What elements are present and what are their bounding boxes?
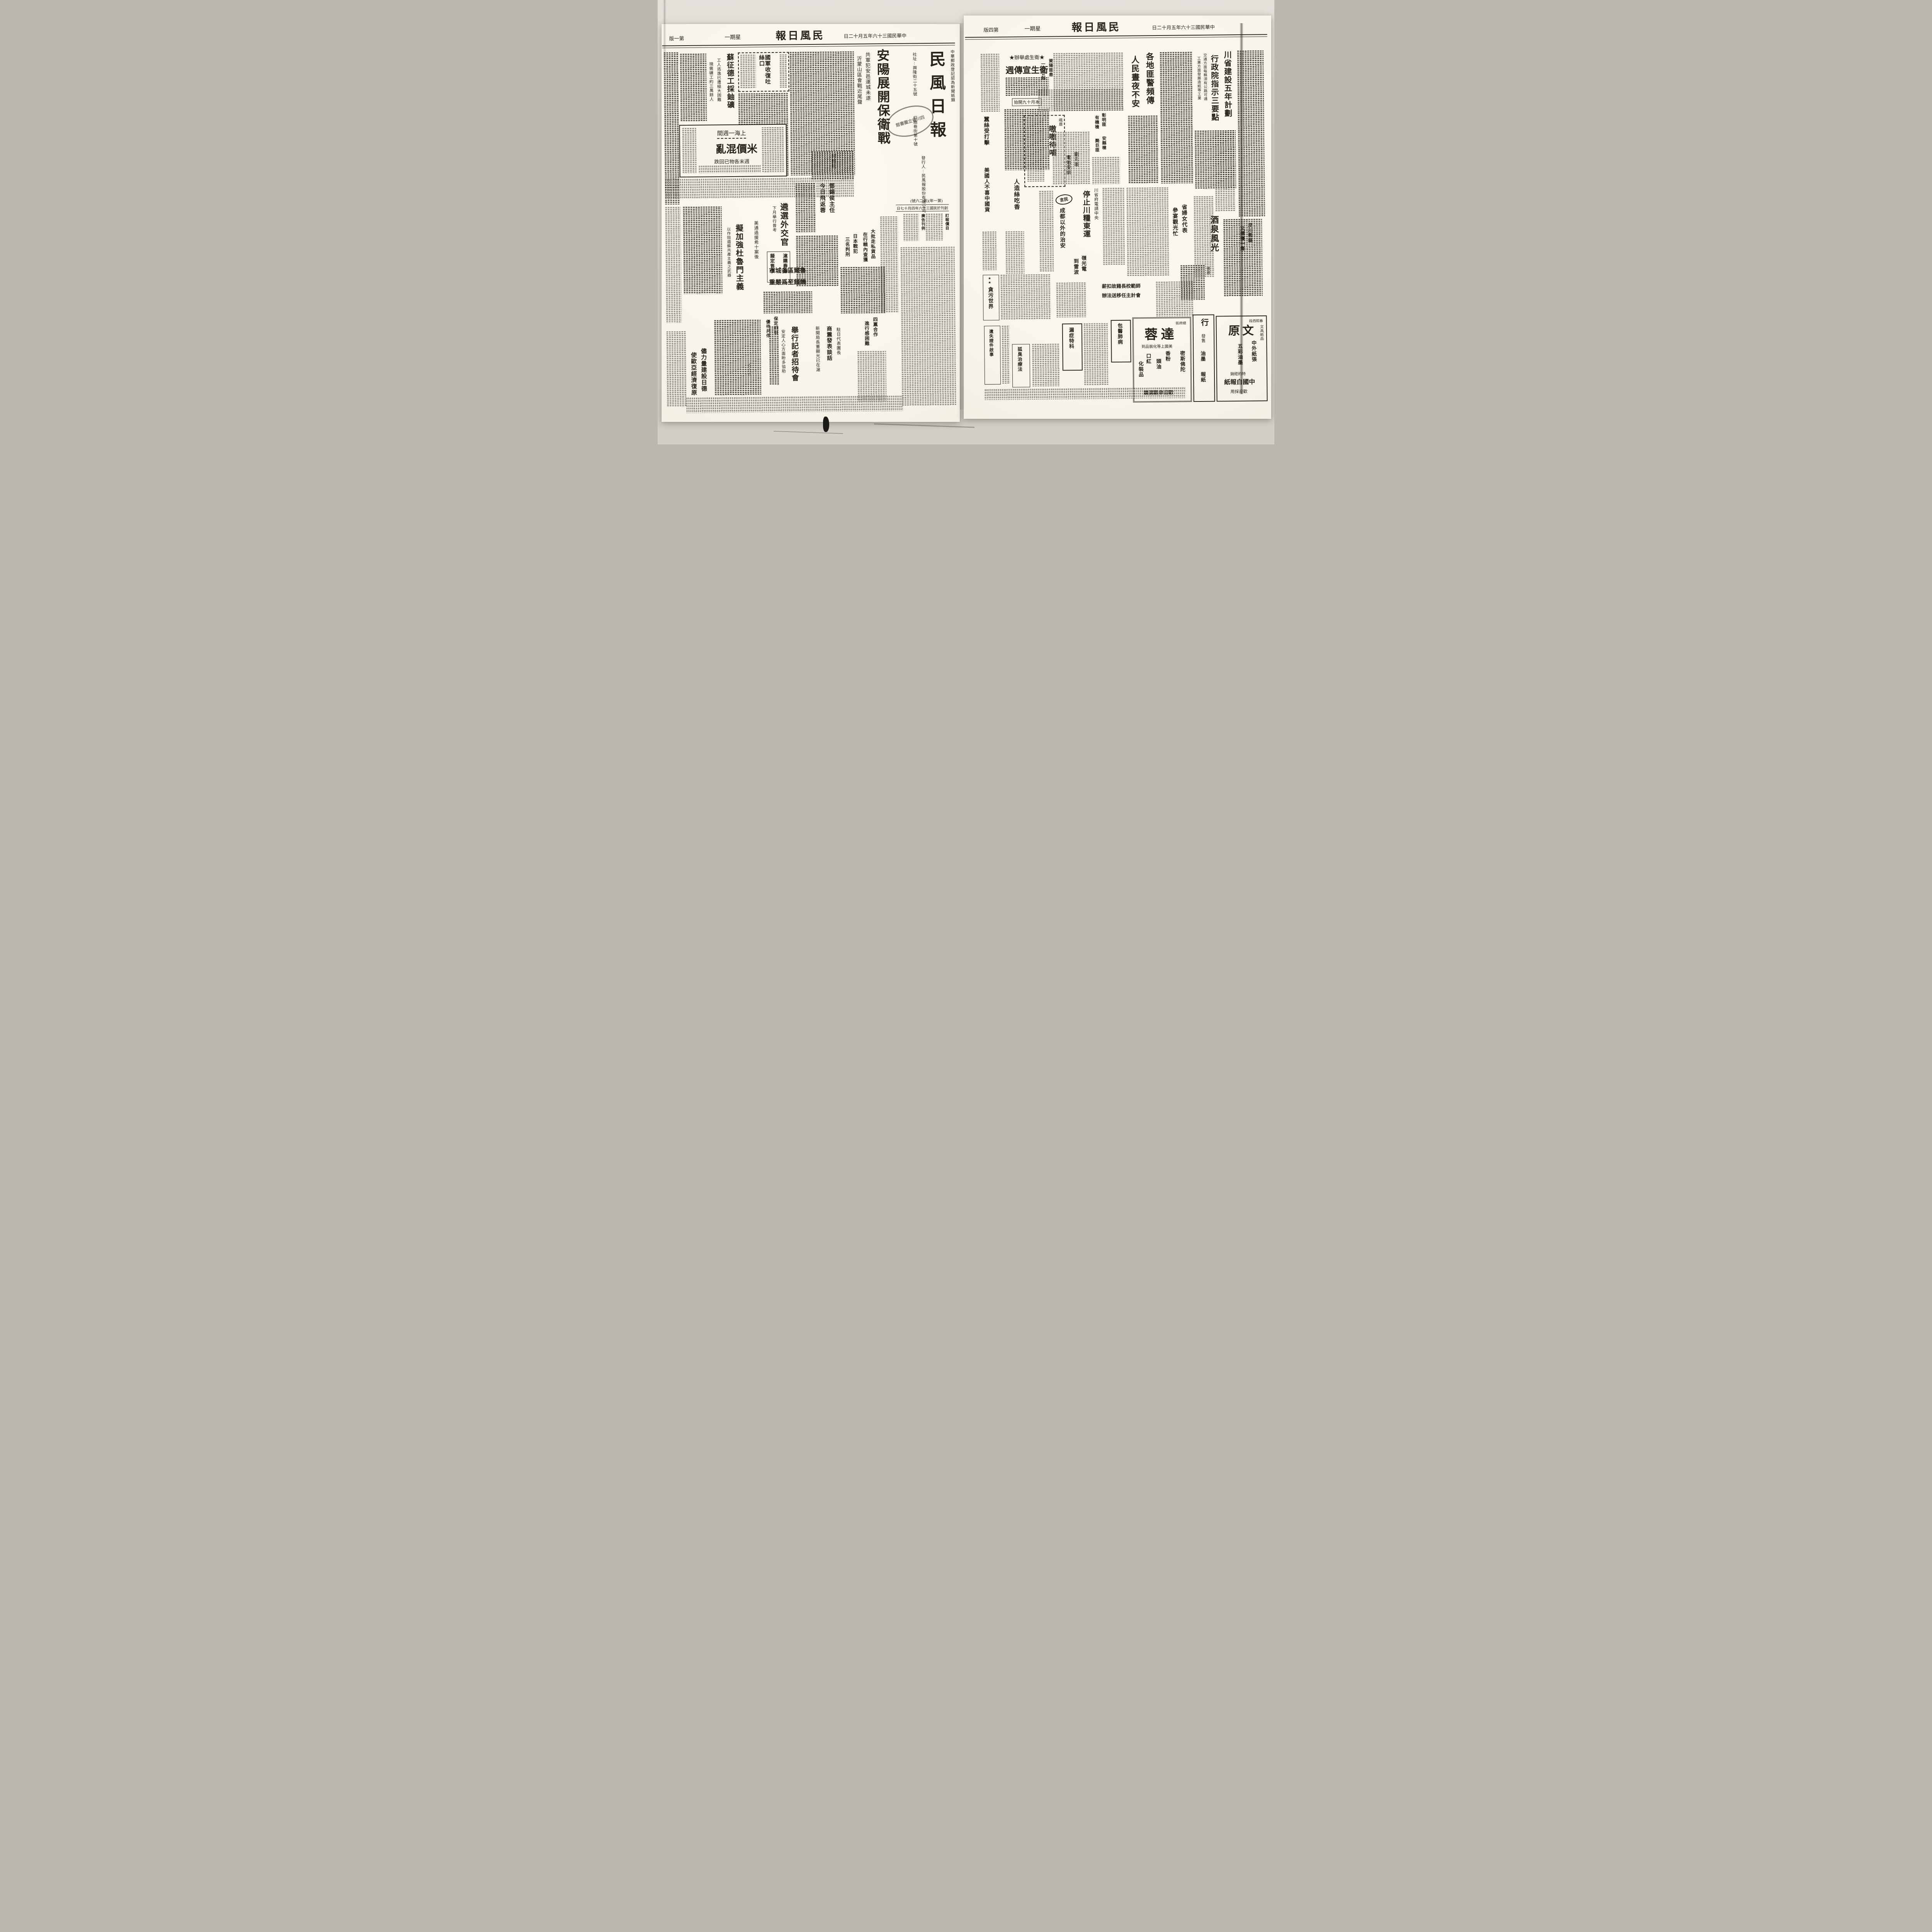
body-text <box>985 387 1185 400</box>
subscription-rates-title: 訂報價目 <box>944 214 948 240</box>
fourparty-headline-1: 四黨合作 <box>872 317 878 345</box>
diplomats-headline: 遴選外交官 <box>779 203 788 248</box>
ad-rates-text <box>903 214 919 241</box>
ziyang-headline-1: 資陽匪患 <box>1048 59 1053 85</box>
left-edition-label: 第一版 <box>669 34 684 42</box>
warcriminals-headline-2: 三名判刑 <box>845 237 850 261</box>
women-headline-2: 參宴觀光忙 <box>1172 207 1178 262</box>
wenyuan-side-label: 文具紙品 <box>1259 325 1264 346</box>
right-edition-label: 第四版 <box>983 26 998 33</box>
tusikou-article-box: 國軍收復吐絲口 <box>738 52 789 92</box>
body-text <box>796 183 816 233</box>
wenyuan-footer: 歡迎採用 <box>1230 388 1247 395</box>
right-date-label: 中華民國三十六年五月十二日 <box>1152 23 1215 31</box>
truman-headline: 擬加強杜魯門主義 <box>734 224 743 292</box>
stamp-text: 四川省立圖書館 <box>895 114 925 128</box>
body-text <box>1002 326 1010 384</box>
body-text <box>1102 188 1125 265</box>
body-text <box>857 351 886 401</box>
zhangming-headline-1: 彰明匪 <box>1101 113 1105 129</box>
triangle-decoration: △△△ <box>747 363 751 398</box>
women-headline-1: 省婦女代表 <box>1181 204 1187 259</box>
press-kicker: 新聞局長董顯光已在滬 <box>815 326 820 383</box>
ruhr-headline-1: 魯爾區各城市 <box>763 265 812 275</box>
masthead-address: 社址:興隆街二十五號 <box>912 52 917 111</box>
banditry-headline-2: 人民晝夜不安 <box>1131 55 1140 112</box>
body-text <box>1053 132 1090 185</box>
body-text <box>682 128 697 173</box>
diplomats-subhead: 下月舉行普考 <box>772 206 777 245</box>
scanner-streak <box>1240 23 1243 394</box>
body-text <box>686 396 903 413</box>
body-odor-ad-title: 狐臭治療法 <box>1017 347 1022 384</box>
grain-headline: 停止川糧東運 <box>1082 190 1090 247</box>
body-text <box>1039 191 1054 272</box>
issue-number-line: (第一年)(第二六號) <box>910 197 942 204</box>
emei-kicker: 峨眉 <box>1058 118 1062 133</box>
jiuquan-byline: 張恩 <box>1205 267 1209 280</box>
left-date-label: 中華民國三十六年五月十二日 <box>844 32 906 40</box>
press-subhead: 安定人心方面盼多協助 <box>781 330 786 384</box>
corruption-title: 貪污世界 <box>987 287 993 318</box>
dengxihou-headline-2: 今日飛返蓉 <box>819 183 825 232</box>
body-text <box>714 320 761 396</box>
masthead-title: 民風日報 <box>927 51 946 202</box>
left-weekday-label: 星期一 <box>724 33 741 41</box>
darong-item-2: 香粉 <box>1165 351 1170 368</box>
rice-price-subhead: 週末各物已回跌 <box>714 158 749 165</box>
ziyang-headline-2: 一月廿起 <box>1040 62 1045 88</box>
silk-headline: 蠶絲受打擊 <box>983 116 989 161</box>
body-text <box>1056 282 1087 318</box>
uranium-subhead-1: 工人逃逸已遭極大困難 <box>716 58 721 116</box>
jiuquan-headline: 酒泉風光 <box>1209 215 1219 273</box>
body-text <box>665 177 854 199</box>
right-page-sheet: 第四版 星期一 民風日報 中華民國三十六年五月十二日 川省建設五年計劃 行政院指… <box>964 15 1271 419</box>
uranium-headline: 蘇征德工採鈾礦 <box>726 53 734 117</box>
header-rule <box>662 43 955 48</box>
header-rule <box>965 34 1267 40</box>
body-text <box>769 327 779 385</box>
grain-kicker: 川省府電請中央 <box>1093 188 1098 233</box>
rayon-headline: 人造絲吃香 <box>1013 179 1019 229</box>
subscription-rates-text <box>926 214 943 241</box>
paper-ink-shop-ad: 行 發售 油墨 報紙 <box>1192 315 1215 402</box>
paper-shop-item-3: 報紙 <box>1200 372 1206 387</box>
paper-shop-item-2: 油墨 <box>1200 351 1205 366</box>
body-text <box>762 127 784 173</box>
darong-item-4: 口紅 <box>1146 353 1151 370</box>
panda-headline-1: 汶川熊貓 <box>1247 223 1253 255</box>
truman-kicker: 美通過援希十案後 <box>753 221 759 270</box>
lung-medicine-ad: 包醫肺病 <box>1111 320 1131 362</box>
shanghai-box-title: 上海一週間 <box>717 129 746 139</box>
body-text <box>1092 157 1121 184</box>
plan-subhead-1: 交通方面每縣須有公路可通 <box>1202 53 1207 125</box>
body-text <box>1005 231 1024 274</box>
body-text <box>811 151 854 180</box>
founded-line: 創刊於民國三十六年四月十七日 <box>896 204 949 212</box>
darong-name: 達蓉 <box>1145 324 1177 343</box>
body-text <box>880 216 899 313</box>
body-text <box>740 54 756 88</box>
page-fold-line <box>774 431 843 434</box>
right-weekday-label: 星期一 <box>1024 25 1041 32</box>
usgoods-headline: 美國人不喜中國貨 <box>983 167 990 228</box>
shanghai-week-box: 上海一週間 米價混亂 週末各物已回跌 <box>679 124 787 178</box>
dengxihou-headline-1: 鄧錫侯主任 <box>828 183 835 231</box>
body-text <box>683 206 723 294</box>
lingguang-headline-1: 嶺光電 <box>1081 255 1086 276</box>
body-text <box>1027 118 1045 182</box>
plan-headline-2: 行政院指示三要點 <box>1209 54 1218 125</box>
principal-headline-1: 師範校長藉故扣薪 <box>1089 282 1154 290</box>
body-text <box>1126 187 1169 277</box>
smuggling-headline-2: 在行轅內查獲 <box>862 232 868 265</box>
uranium-subhead-2: 現需礦工約三萬餘人 <box>709 62 713 116</box>
lung-ad-title: 包醫肺病 <box>1117 323 1123 359</box>
lost-documents-notice: 遺失證件啟事 <box>984 326 1001 384</box>
shangzhen-headline: 商震發表談話 <box>826 326 832 366</box>
body-text <box>982 231 997 270</box>
darong-item-5: 化裝品 <box>1138 361 1143 383</box>
darong-tagline: 美國上等化裝品到 <box>1141 343 1172 349</box>
body-text <box>981 54 1000 112</box>
body-text <box>840 267 886 313</box>
scanner-streak <box>663 0 666 58</box>
principal-headline-2: 會計主任移送法辦 <box>1089 291 1154 299</box>
tusikou-headline: 國軍收復吐絲口 <box>758 54 770 88</box>
hygiene-kicker: ★衛生處舉辦★ <box>1009 53 1044 61</box>
body-text <box>1000 274 1051 320</box>
darong-item-3: 頭油 <box>1156 359 1161 376</box>
body-text <box>1156 281 1194 316</box>
body-text <box>1084 323 1109 385</box>
lead-headline: 安陽展開保衛戰 <box>875 49 889 151</box>
body-text <box>1032 344 1060 386</box>
shangzhen-kicker: 駐日代表團長 <box>836 327 841 364</box>
plan-headline-1: 川省建設五年計劃 <box>1223 51 1231 121</box>
smuggling-headline-1: 大批走私貨品 <box>870 229 876 261</box>
body-text <box>901 247 956 405</box>
anxian-headline-1: 安縣槍 <box>1101 136 1106 152</box>
body-odor-ad: 狐臭治療法 <box>1012 344 1030 387</box>
wenyuan-item-1: 中外紙張 <box>1251 340 1256 365</box>
rebuild-headline-1: 儘力量建設日德 <box>700 348 706 393</box>
body-text <box>780 54 787 88</box>
left-paper-title: 民風日報 <box>776 27 825 43</box>
body-text <box>667 331 687 407</box>
center-gutter-shadow <box>960 23 964 410</box>
right-paper-title: 民風日報 <box>1071 19 1121 34</box>
ink-blot <box>823 417 829 432</box>
right-page: 第四版 星期一 民風日報 中華民國三十六年五月十二日 川省建設五年計劃 行政院指… <box>962 14 1273 420</box>
ruhr-article: 魯爾區各城市 饑饉至爲嚴重 <box>763 265 812 290</box>
press-headline: 舉行記者招待會 <box>790 326 799 385</box>
banditry-headline-1: 各地匪警頻傳 <box>1145 52 1155 109</box>
ruhr-headline-2: 饑饉至爲嚴重 <box>763 277 812 286</box>
principal-article: 師範校長藉故扣薪 會計主任移送法辦 <box>1089 282 1154 305</box>
minyan-title: 成都以外的治安 <box>1059 207 1065 269</box>
minyan-logo-text: 民言 <box>1059 196 1068 203</box>
hygiene-start-note: 本月十九開始 <box>1012 98 1041 106</box>
rice-price-headline: 米價混亂 <box>716 140 757 156</box>
ad-rates-title: 廣告刊例 <box>920 214 924 240</box>
lead-subhead: 沂蒙山區會戰近尾聲 <box>856 56 862 136</box>
zhangming-headline-2: 有機槍 <box>1094 115 1099 131</box>
body-text <box>680 54 707 122</box>
plan-subhead-2: 工業方面發展造紙等工業 <box>1196 56 1201 128</box>
body-text <box>1038 89 1124 111</box>
paper-shop-name: 行 <box>1200 318 1208 331</box>
body-text <box>699 165 761 173</box>
lead-kicker: 共軍犯安邑運城未遂 <box>865 52 871 133</box>
corruption-box: ★★ 貪污世界 <box>983 275 999 320</box>
gonorrhea-clinic-ad: 漏症特科 <box>1062 323 1083 371</box>
lost-notice-title: 遺失證件啟事 <box>988 329 993 381</box>
page-fold-line <box>874 423 975 428</box>
left-page: 第一版 星期一 民風日報 中華民國三十六年五月十二日 中華郵政登記認為新聞紙類 … <box>660 22 962 423</box>
anxian-headline-2: 斃巨匪 <box>1094 138 1099 155</box>
body-text <box>1160 52 1194 184</box>
rebuild-headline-2: 使歐亞經濟復原 <box>690 352 696 397</box>
gonorrhea-ad-title: 漏症特科 <box>1068 327 1074 366</box>
body-text <box>665 207 682 323</box>
left-page-sheet: 第一版 星期一 民風日報 中華民國三十六年五月十二日 中華郵政登記認為新聞紙類 … <box>662 24 960 422</box>
body-text <box>1128 116 1159 184</box>
paper-shop-item-1: 發售 <box>1201 334 1205 347</box>
fourparty-headline-2: 進行感困難 <box>864 321 869 350</box>
minyan-column-logo: 民言 <box>1055 193 1073 206</box>
truman-subhead: 以作阻遏蘇共產主義之武器 <box>726 227 730 289</box>
newspaper-scan: 第一版 星期一 民風日報 中華民國三十六年五月十二日 中華郵政登記認為新聞紙類 … <box>658 0 1274 444</box>
lingguang-headline-2: 到雷波 <box>1073 259 1078 279</box>
darong-item-1: 密斯佛陀 <box>1180 350 1185 379</box>
corruption-stars: ★★ <box>988 277 992 286</box>
warcriminals-headline-1: 日本戰犯 <box>852 234 857 258</box>
body-text <box>764 291 813 313</box>
body-text <box>1215 130 1236 211</box>
postal-registration-line: 中華郵政登記認為新聞紙類 <box>950 49 956 153</box>
